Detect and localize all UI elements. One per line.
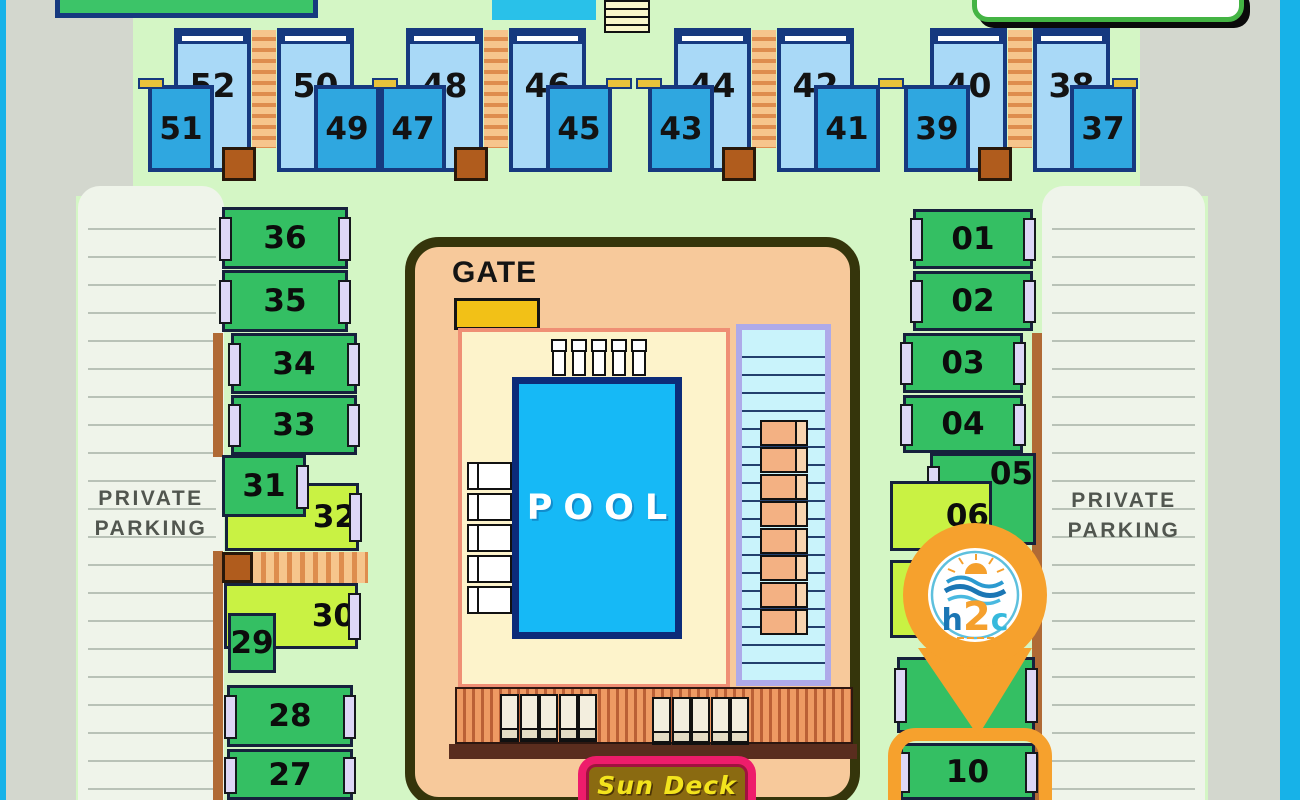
door-tab: [900, 342, 913, 385]
unit-27: 27: [227, 749, 353, 800]
door-tab: [338, 217, 351, 261]
door-tab: [348, 593, 361, 640]
door-tab: [1013, 342, 1026, 385]
deck-lounger-icon: [652, 697, 671, 745]
door-tab: [1023, 280, 1036, 323]
resort-site-map: PRIVATE PARKING PRIVATE PARKING 52515049…: [0, 0, 1300, 800]
chair-back: [551, 339, 567, 352]
h2c-location-pin-icon[interactable]: h2c: [885, 512, 1070, 752]
walkway-lounger-icon: [760, 420, 808, 446]
chair-back: [571, 339, 587, 352]
building-roof: [934, 32, 1003, 44]
door-tab: [219, 217, 232, 261]
chair-back: [631, 339, 647, 352]
stair-landing-2: [722, 147, 756, 181]
lounger-icon: [467, 493, 512, 521]
stairs-icon-left-column: [253, 552, 368, 583]
lounger-divider: [477, 557, 479, 581]
lounger-pillow: [795, 476, 806, 498]
right-border-stripe: [1280, 0, 1300, 800]
roof-stripe: [1041, 36, 1102, 41]
roof-stripe: [285, 36, 346, 41]
lounger-pillow: [795, 503, 806, 525]
unit-number: 34: [234, 336, 354, 391]
unit-number: 31: [225, 458, 303, 514]
unit-45: 45: [546, 85, 612, 172]
unit-33: 33: [231, 395, 357, 455]
unit-43: 43: [648, 85, 714, 172]
walkway-lounger-icon: [760, 555, 808, 581]
private-parking-label-left: PRIVATE PARKING: [80, 484, 222, 544]
walkway-lounger-icon: [760, 528, 808, 554]
stairs-icon-1: [484, 30, 508, 148]
left-gray-band: [6, 0, 76, 800]
pool-chair-icon: [571, 339, 587, 376]
unit-04: 04: [903, 395, 1023, 453]
connector-dash-0: [138, 78, 164, 89]
door-tab: [910, 280, 923, 323]
stair-landing-left-column: [222, 552, 253, 583]
unit-41: 41: [814, 85, 880, 172]
lounger-icon: [467, 462, 512, 490]
private-parking-left-line2: PARKING: [80, 514, 222, 544]
gate-label: GATE: [452, 256, 537, 290]
lounger-foot: [730, 731, 749, 743]
chair-back: [591, 339, 607, 352]
roof-stripe: [414, 36, 475, 41]
walk-strip-left-lower: [213, 551, 223, 800]
door-tab: [228, 343, 241, 387]
chair-seat: [592, 352, 606, 376]
building-roof: [513, 32, 582, 44]
unit-number: 03: [906, 336, 1020, 390]
lounger-foot: [500, 728, 519, 740]
lounger-pillow: [795, 584, 806, 606]
unit-49: 49: [314, 85, 380, 172]
lounger-foot: [691, 731, 710, 743]
deck-lounger-icon: [500, 694, 519, 742]
deck-lounger-icon: [691, 697, 710, 745]
building-pair-46-45: 4645: [508, 28, 612, 172]
lounger-divider: [477, 495, 479, 519]
top-right-banner: [972, 0, 1244, 22]
roof-stripe: [938, 36, 999, 41]
building-roof: [178, 32, 247, 44]
connector-dash-1: [372, 78, 398, 89]
door-tab: [219, 280, 232, 324]
door-tab: [1023, 218, 1036, 261]
building-roof: [678, 32, 747, 44]
stairs-icon-3: [1008, 30, 1032, 148]
chair-seat: [632, 352, 646, 376]
door-tab: [343, 757, 356, 793]
walk-strip-left-upper: [213, 333, 223, 457]
lounger-pillow: [795, 557, 806, 579]
unit-number: 02: [916, 274, 1030, 328]
unit-47: 47: [380, 85, 446, 172]
door-tab: [349, 493, 362, 542]
unit-number: 04: [906, 398, 1020, 450]
building-pair-42-41: 4241: [776, 28, 880, 172]
unit-29: 29: [228, 613, 276, 673]
door-tab: [910, 218, 923, 261]
deck-lounger-icon: [730, 697, 749, 745]
lounger-foot: [578, 728, 597, 740]
pool-chair-icon: [591, 339, 607, 376]
pool-chair-icon: [631, 339, 647, 376]
lounger-pillow: [795, 530, 806, 552]
lounger-divider: [477, 464, 479, 488]
unit-51: 51: [148, 85, 214, 172]
gate-bar: [454, 298, 540, 330]
chair-seat: [572, 352, 586, 376]
deck-lounger-icon: [578, 694, 597, 742]
unit-03: 03: [903, 333, 1023, 393]
unit-39: 39: [904, 85, 970, 172]
unit-01: 01: [913, 209, 1033, 269]
lounger-pillow: [795, 422, 806, 444]
lounger-divider: [477, 526, 479, 550]
stairs-icon-0: [252, 30, 276, 148]
sun-deck-sign-label: Sun Deck: [597, 764, 736, 800]
deck-lounger-icon: [520, 694, 539, 742]
unit-number: 36: [225, 210, 345, 266]
stair-landing-0: [222, 147, 256, 181]
lounger-pillow: [795, 449, 806, 471]
deck-lounger-icon: [711, 697, 730, 745]
lounger-foot: [520, 728, 539, 740]
unit-28: 28: [227, 685, 353, 747]
door-tab: [228, 404, 241, 447]
door-tab: [296, 465, 309, 509]
unit-34: 34: [231, 333, 357, 394]
lounger-foot: [711, 731, 730, 743]
top-center-banner: [492, 0, 596, 20]
chair-seat: [612, 352, 626, 376]
connector-dash-5: [1112, 78, 1138, 89]
lounger-icon: [467, 555, 512, 583]
connector-dash-3: [636, 78, 662, 89]
deck-lounger-icon: [539, 694, 558, 742]
door-tab: [343, 695, 356, 739]
unit-35: 35: [222, 270, 348, 332]
stairs-icon-2: [752, 30, 776, 148]
roof-stripe: [517, 36, 578, 41]
unit-number: 35: [225, 273, 345, 329]
pool-label: POOL: [516, 488, 678, 528]
private-parking-left-line1: PRIVATE: [80, 484, 222, 514]
roof-stripe: [182, 36, 243, 41]
lounger-foot: [539, 728, 558, 740]
walkway-lounger-icon: [760, 501, 808, 527]
pool-chair-icon: [611, 339, 627, 376]
unit-number: 01: [916, 212, 1030, 266]
unit-number: 28: [230, 688, 350, 744]
door-tab: [900, 404, 913, 445]
connector-dash-4: [878, 78, 904, 89]
lounger-foot: [672, 731, 691, 743]
walkway-lounger-icon: [760, 582, 808, 608]
building-roof: [410, 32, 479, 44]
pool-chair-icon: [551, 339, 567, 376]
door-tab: [1013, 404, 1026, 445]
building-roof: [1037, 32, 1106, 44]
roof-stripe: [785, 36, 846, 41]
stair-landing-1: [454, 147, 488, 181]
unit-37: 37: [1070, 85, 1136, 172]
chair-seat: [552, 352, 566, 376]
roof-stripe: [682, 36, 743, 41]
door-tab: [347, 404, 360, 447]
building-roof: [281, 32, 350, 44]
door-tab: [338, 280, 351, 324]
left-border-stripe: [0, 0, 6, 800]
connector-dash-2: [606, 78, 632, 89]
building-pair-50-49: 5049: [276, 28, 380, 172]
unit-36: 36: [222, 207, 348, 269]
pool: POOL: [512, 377, 682, 639]
unit-02: 02: [913, 271, 1033, 331]
building-roof: [781, 32, 850, 44]
stair-landing-3: [978, 147, 1012, 181]
lounger-foot: [559, 728, 578, 740]
top-left-banner: [55, 0, 318, 18]
walkway-lounger-icon: [760, 474, 808, 500]
building-pair-38-37: 3837: [1032, 28, 1136, 172]
door-tab: [224, 695, 237, 739]
door-tab: [224, 757, 237, 793]
door-tab: [347, 343, 360, 387]
lounger-pillow: [795, 611, 806, 633]
lounger-divider: [477, 588, 479, 612]
lounger-icon: [467, 586, 512, 614]
lounger-foot: [652, 731, 671, 743]
right-gray-band: [1208, 0, 1282, 800]
unit-31: 31: [222, 455, 306, 517]
walkway-lounger-icon: [760, 609, 808, 635]
unit-number: 29: [231, 616, 273, 670]
walkway-lounger-icon: [760, 447, 808, 473]
deck-lounger-icon: [672, 697, 691, 745]
sun-deck-sign: Sun Deck: [578, 756, 756, 800]
chair-back: [611, 339, 627, 352]
unit-number: 27: [230, 752, 350, 797]
lounger-icon: [467, 524, 512, 552]
unit-number: 33: [234, 398, 354, 452]
deck-lounger-icon: [559, 694, 578, 742]
